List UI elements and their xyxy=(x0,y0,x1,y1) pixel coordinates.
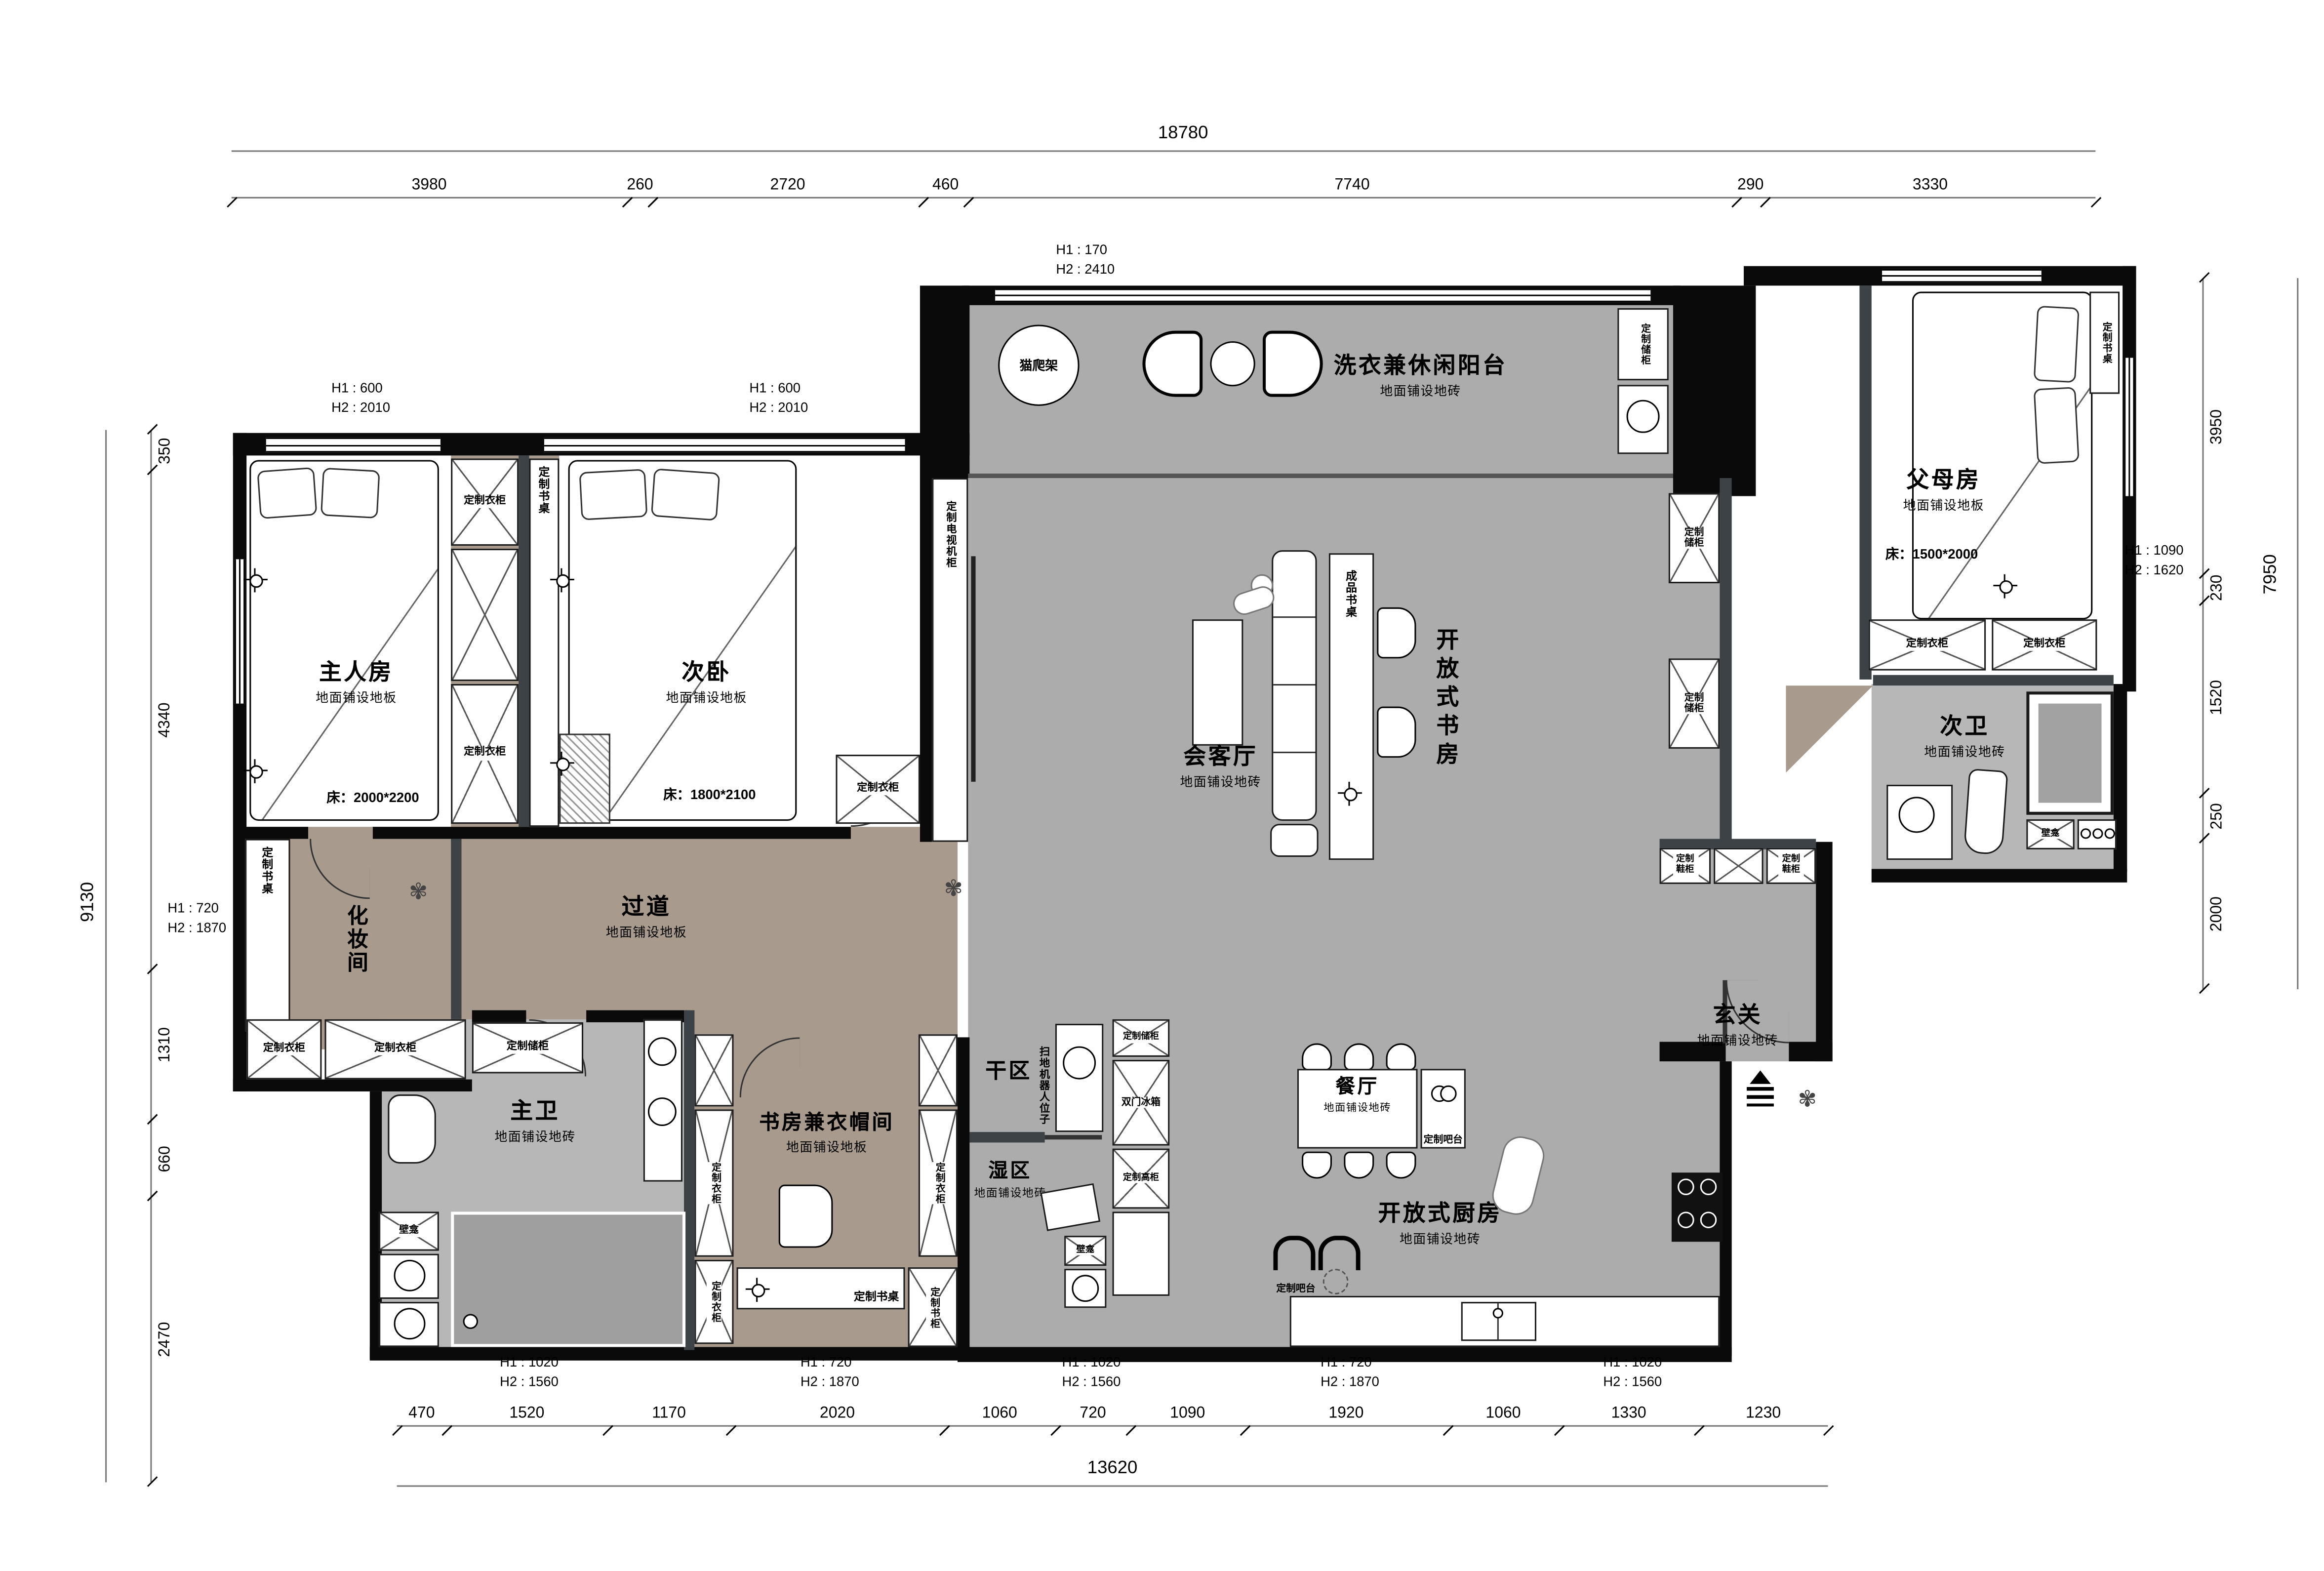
bookcase-box: 定制书柜 xyxy=(908,1267,958,1347)
bar-stool xyxy=(1273,1236,1315,1270)
room-floor: 地面铺设地砖 xyxy=(1334,382,1508,400)
sofa-divider xyxy=(1273,684,1315,686)
wardrobe-box: 定制衣柜 xyxy=(246,1019,321,1080)
dim-bottom-overall-line xyxy=(397,1485,1828,1487)
room-floor: 地面铺设地板 xyxy=(1903,496,1984,515)
hnote-bottom-4: H1 : 720H2 : 1870 xyxy=(1321,1353,1379,1392)
room-label-wet: 湿区 地面铺设地砖 xyxy=(974,1161,1046,1201)
desk-label: 定制书桌 xyxy=(259,841,276,895)
tv-cabinet-label: 定制电视机柜 xyxy=(943,480,958,568)
sofa-chaise xyxy=(1270,824,1318,857)
door-leaf-wet xyxy=(1045,1135,1102,1139)
sink-icon xyxy=(1063,1047,1096,1080)
storage-box: 定制储柜 xyxy=(1669,658,1720,749)
stool-swing xyxy=(1323,1269,1349,1294)
sink-icon xyxy=(1899,797,1935,833)
sink-icon xyxy=(648,1037,677,1066)
burner-icon xyxy=(1700,1178,1717,1195)
wardrobe-box xyxy=(694,1034,733,1106)
room-floor: 地面铺设地砖 xyxy=(494,1128,575,1146)
niche-box: 壁龛 xyxy=(1064,1236,1106,1266)
room-label-bath2: 次卫 地面铺设地砖 xyxy=(1924,716,2005,761)
room-label-parents: 父母房 地面铺设地板 xyxy=(1903,469,1984,514)
ready-desk-label: 成品书桌 xyxy=(1343,555,1360,618)
dim-top-overall: 18780 xyxy=(1158,122,1208,143)
dim-left-segments: 350 4340 1310 660 2470 xyxy=(150,430,177,1483)
counter-box xyxy=(1113,1211,1170,1295)
dining-chair xyxy=(1386,1044,1416,1071)
window-balcony xyxy=(995,288,1650,302)
shoe-cabinet-box: 定制鞋柜 xyxy=(1660,848,1711,884)
wall-entry-right xyxy=(1816,842,1832,1061)
desk-chair xyxy=(1377,607,1416,658)
room-label-master: 主人房 地面铺设地板 xyxy=(316,661,397,706)
room-floor: 地面铺设地板 xyxy=(606,923,687,941)
wall-corridor-b xyxy=(373,827,851,839)
room-name: 主人房 xyxy=(316,661,397,684)
room-name: 次卫 xyxy=(1924,716,2005,738)
room-label-second: 次卧 地面铺设地板 xyxy=(666,661,747,706)
niche-box: 壁龛 xyxy=(2026,819,2074,849)
wall-spine-lower xyxy=(958,1037,969,1350)
tv-cabinet: 定制电视机柜 xyxy=(932,478,968,842)
room-floor: 地面铺设地砖 xyxy=(1378,1230,1502,1248)
wall-bath1-top-a xyxy=(472,1010,526,1022)
room-floor: 地面铺设地砖 xyxy=(1323,1100,1391,1115)
room-floor: 地面铺设地砖 xyxy=(1924,743,2005,761)
dim-right-segments: 3950 230 1520 250 2000 xyxy=(2202,278,2229,989)
room-floor: 地面铺设地砖 xyxy=(1697,1031,1778,1049)
hnote-balcony: H1 : 170H2 : 2410 xyxy=(1056,241,1115,280)
entry-arrow-icon xyxy=(1747,1070,1774,1109)
washer-drum-icon xyxy=(394,1260,426,1291)
wall-spine-upper xyxy=(920,478,932,842)
room-floor: 地面铺设地板 xyxy=(666,688,747,707)
storage-box: 定制储柜 xyxy=(1113,1019,1170,1057)
room-floor: 地面铺设地板 xyxy=(316,688,397,707)
plant-icon: ✾ xyxy=(409,878,428,905)
wall-living-right xyxy=(1720,478,1731,842)
spot-icon xyxy=(2092,828,2103,839)
room-name: 主卫 xyxy=(494,1100,575,1123)
window-second xyxy=(544,438,905,452)
sofa-divider xyxy=(1273,752,1315,754)
bed-size-master: 床：2000*2200 xyxy=(326,787,419,807)
sink-icon xyxy=(648,1097,677,1126)
wardrobe-box: 定制衣柜 xyxy=(1869,619,1986,670)
room-name: 会客厅 xyxy=(1180,746,1261,768)
pillow xyxy=(257,467,317,519)
fridge-box: 双门冰箱 xyxy=(1113,1060,1170,1146)
window-parents xyxy=(1882,269,2042,282)
storage-box-balcony: 定制储柜 xyxy=(1617,308,1668,380)
room-label-kitchen: 开放式厨房 地面铺设地砖 xyxy=(1378,1203,1502,1248)
toilet-bath1 xyxy=(388,1094,436,1164)
wardrobe-box xyxy=(451,549,519,681)
desk-strip-parents: 定制书桌 xyxy=(2089,292,2120,394)
dim-left-overall: 9130 xyxy=(77,882,98,922)
desk-label: 定制书桌 xyxy=(2097,322,2112,363)
desk-chair xyxy=(779,1185,833,1248)
dining-chair xyxy=(1302,1044,1332,1071)
wardrobe-box: 定制衣柜 xyxy=(325,1019,466,1080)
hnote-makeup: H1 : 720H2 : 1870 xyxy=(167,899,226,938)
plant-icon: ✾ xyxy=(944,875,963,902)
floor-plan-canvas: 主人房 地面铺设地板 床：2000*2200 定制衣柜 定制衣柜 定制书桌 次卧… xyxy=(0,0,2324,1571)
room-label-dry: 干区 xyxy=(985,1060,1032,1081)
room-label-study: 书房兼衣帽间 地面铺设地板 xyxy=(759,1113,894,1156)
wall-balcony-left-block xyxy=(920,285,969,478)
dim-left-overall-line xyxy=(105,430,107,1483)
wall-lower-wing-bottom xyxy=(370,1347,970,1360)
room-name: 餐厅 xyxy=(1323,1077,1391,1096)
light-icon xyxy=(746,1278,770,1302)
storage-box: 定制储柜 xyxy=(1669,493,1720,583)
washer-drum-icon xyxy=(1072,1275,1099,1302)
wall-entry-bottom-b xyxy=(1789,1042,1832,1061)
cup-icon xyxy=(1440,1086,1456,1102)
light-icon xyxy=(243,568,268,593)
shower-area xyxy=(451,1211,685,1347)
tall-cabinet-box: 定制高柜 xyxy=(1113,1149,1170,1209)
hnote-bottom-3: H1 : 1020H2 : 1560 xyxy=(1062,1353,1121,1392)
armchair xyxy=(1142,331,1202,397)
cat-tree: 猫爬架 xyxy=(998,325,1079,406)
wall-bath1-study-divider xyxy=(684,1010,694,1350)
shoe-cabinet-box: 定制鞋柜 xyxy=(1766,848,1816,884)
bed-size-second: 床：1800*2100 xyxy=(663,784,756,804)
shower-floor xyxy=(2039,704,2102,803)
room-label-dining: 餐厅 地面铺设地砖 xyxy=(1323,1077,1391,1116)
bar-label: 定制吧台 xyxy=(1424,1130,1463,1145)
light-icon xyxy=(1338,782,1362,806)
room-name: 洗衣兼休闲阳台 xyxy=(1334,355,1508,377)
desk-label: 定制书桌 xyxy=(536,460,552,514)
pillow xyxy=(579,469,648,520)
room-label-bath1: 主卫 地面铺设地砖 xyxy=(494,1100,575,1145)
hnote-right: H1 : 1090H2 : 1620 xyxy=(2125,541,2184,580)
room-name: 过道 xyxy=(606,896,687,919)
ready-desk: 成品书桌 xyxy=(1329,553,1374,860)
wall-bath2-bottom xyxy=(1872,869,2127,882)
room-floor: 地面铺设地砖 xyxy=(974,1185,1046,1201)
wardrobe-box: 定制衣柜 xyxy=(451,458,519,546)
wardrobe-box: 定制衣柜 xyxy=(836,755,920,824)
dim-bottom-segments: 470 1520 1170 2020 1060 720 1090 1920 10… xyxy=(397,1401,1828,1427)
wall-second-left xyxy=(519,455,529,827)
pillow xyxy=(2034,387,2080,464)
wardrobe-box xyxy=(919,1034,958,1106)
dining-chair xyxy=(1344,1044,1374,1071)
bar-label: 定制吧台 xyxy=(1276,1279,1315,1294)
wall-dry-wet-divider xyxy=(969,1132,1044,1142)
rug-hatch xyxy=(559,733,610,824)
room-name: 开放式厨房 xyxy=(1378,1203,1502,1225)
room-label-open-study: 开放式书房 xyxy=(1435,628,1457,770)
room-name: 湿区 xyxy=(974,1161,1046,1180)
room-name: 玄关 xyxy=(1697,1004,1778,1027)
room-label-makeup: 化妆间 xyxy=(347,905,368,975)
light-icon xyxy=(243,759,268,783)
room-floor: 地面铺设地板 xyxy=(759,1137,894,1156)
balcony-slider-track xyxy=(968,474,1673,478)
wardrobe-box: 定制衣柜 xyxy=(919,1109,958,1256)
window-parents-right xyxy=(2124,358,2134,496)
robot-spot-label: 扫地机器人位子 xyxy=(1036,1046,1050,1125)
burner-icon xyxy=(1678,1211,1694,1228)
faucet-icon xyxy=(1493,1308,1503,1318)
toilet-bath2 xyxy=(1963,768,2008,855)
bed-size-parents: 床：1500*2000 xyxy=(1885,543,1978,563)
light-icon xyxy=(1993,574,2017,599)
hnote-bottom-2: H1 : 720H2 : 1870 xyxy=(801,1353,859,1392)
cat-tree-label: 猫爬架 xyxy=(1020,356,1058,374)
room-name: 父母房 xyxy=(1903,469,1984,492)
side-table xyxy=(1210,341,1255,386)
door-wedge-bath2 xyxy=(1786,685,1873,773)
wardrobe-box: 定制衣柜 xyxy=(694,1260,733,1344)
wall-bath2-top xyxy=(1873,675,2114,685)
dim-bottom-overall: 13620 xyxy=(1087,1457,1138,1478)
tv-icon xyxy=(971,556,975,782)
storage-box: 定制储柜 xyxy=(472,1022,583,1073)
light-icon xyxy=(550,752,574,776)
niche-box: 壁龛 xyxy=(379,1211,439,1250)
pillow xyxy=(2034,306,2080,383)
window-master xyxy=(266,438,441,452)
room-floor: 地面铺设地砖 xyxy=(1180,773,1261,791)
burner-icon xyxy=(1700,1211,1717,1228)
pillow xyxy=(651,468,720,521)
washer-drum-icon xyxy=(1627,400,1660,433)
dim-top-overall-line xyxy=(232,150,2096,152)
plant-icon: ✾ xyxy=(1798,1086,1817,1113)
spot-icon xyxy=(2105,828,2115,839)
desk-chair xyxy=(1377,707,1416,758)
hnote-second: H1 : 600H2 : 2010 xyxy=(749,379,808,418)
wardrobe-box: 定制衣柜 xyxy=(1992,619,2097,670)
bar-stool xyxy=(1319,1236,1361,1270)
floor-balcony xyxy=(969,305,1673,478)
pillow xyxy=(321,468,380,519)
dim-top-segments: 3980 260 2720 460 7740 290 3330 xyxy=(232,173,2096,199)
wall-junction-block xyxy=(1673,285,1756,496)
hnote-master: H1 : 600H2 : 2010 xyxy=(331,379,390,418)
shoe-cabinet-box xyxy=(1714,848,1763,884)
spot-icon xyxy=(2081,828,2091,839)
light-icon xyxy=(550,568,574,593)
room-label-corridor: 过道 地面铺设地板 xyxy=(606,896,687,941)
sofa-divider xyxy=(1273,616,1315,618)
coffee-table xyxy=(1192,619,1243,746)
hnote-bottom-1: H1 : 1020H2 : 1560 xyxy=(500,1353,559,1392)
wall-corridor-a xyxy=(245,827,308,839)
hnote-bottom-5: H1 : 1020H2 : 1560 xyxy=(1603,1353,1662,1392)
wardrobe-box: 定制衣柜 xyxy=(451,684,519,824)
wall-stub-makeup-bottom xyxy=(233,1080,472,1091)
screenshot: 主人房 地面铺设地板 床：2000*2200 定制衣柜 定制衣柜 定制书桌 次卧… xyxy=(0,0,2324,1571)
dim-right-overall-line xyxy=(2297,278,2298,989)
wall-makeup-divider xyxy=(451,839,461,1038)
wardrobe-box: 定制衣柜 xyxy=(694,1109,733,1256)
desk-label: 定制书桌 xyxy=(854,1289,903,1308)
room-name: 书房兼衣帽间 xyxy=(759,1113,894,1133)
room-label-entry: 玄关 地面铺设地砖 xyxy=(1697,1004,1778,1049)
room-label-balcony: 洗衣兼休闲阳台 地面铺设地砖 xyxy=(1334,355,1508,400)
desk-strip-makeup: 定制书桌 xyxy=(245,839,290,1032)
drain-icon xyxy=(463,1314,478,1329)
room-label-living: 会客厅 地面铺设地砖 xyxy=(1180,746,1261,791)
room-name: 次卧 xyxy=(666,661,747,684)
dim-right-overall: 7950 xyxy=(2259,554,2281,594)
burner-icon xyxy=(1678,1178,1694,1195)
washer-drum-icon xyxy=(394,1308,426,1339)
